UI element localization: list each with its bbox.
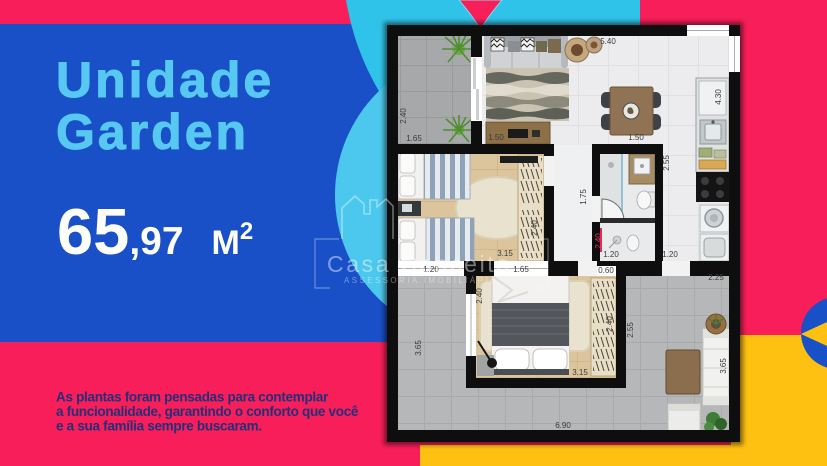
- svg-text:2.40: 2.40: [605, 316, 614, 332]
- svg-text:Unidade: Unidade: [56, 52, 274, 108]
- svg-text:2.25: 2.25: [708, 273, 724, 282]
- svg-text:0.60: 0.60: [598, 266, 614, 275]
- svg-text:2.55: 2.55: [626, 322, 635, 338]
- svg-text:As plantas foram pensadas para: As plantas foram pensadas para contempla…: [56, 390, 329, 405]
- svg-text:1.65: 1.65: [513, 265, 529, 274]
- svg-text:5.40: 5.40: [600, 37, 616, 46]
- svg-text:4.30: 4.30: [714, 89, 723, 105]
- svg-text:3.15: 3.15: [572, 368, 588, 377]
- svg-text:2.40: 2.40: [475, 288, 484, 304]
- svg-text:Garden: Garden: [56, 104, 249, 160]
- svg-text:1.75: 1.75: [579, 189, 588, 205]
- svg-text:Casa Conceito: Casa Conceito: [327, 251, 512, 277]
- svg-text:3.65: 3.65: [414, 340, 423, 356]
- svg-text:e a sua família sempre buscara: e a sua família sempre buscaram.: [56, 419, 262, 434]
- svg-text:1.50: 1.50: [488, 133, 504, 142]
- svg-text:2.40: 2.40: [399, 108, 408, 124]
- svg-text:1.20: 1.20: [603, 250, 619, 259]
- svg-text:2.40: 2.40: [530, 220, 539, 236]
- svg-text:1.65: 1.65: [406, 134, 422, 143]
- svg-text:2.40: 2.40: [594, 233, 603, 249]
- svg-text:ASSESSORIA IMOBILIÁRIA: ASSESSORIA IMOBILIÁRIA: [344, 276, 498, 285]
- svg-text:3.65: 3.65: [719, 358, 728, 374]
- svg-text:1.20: 1.20: [662, 250, 678, 259]
- svg-text:a funcionalidade, garantindo o: a funcionalidade, garantindo o conforto …: [56, 404, 359, 419]
- svg-text:6.90: 6.90: [555, 421, 571, 430]
- svg-text:1.50: 1.50: [628, 133, 644, 142]
- svg-text:2.55: 2.55: [662, 155, 671, 171]
